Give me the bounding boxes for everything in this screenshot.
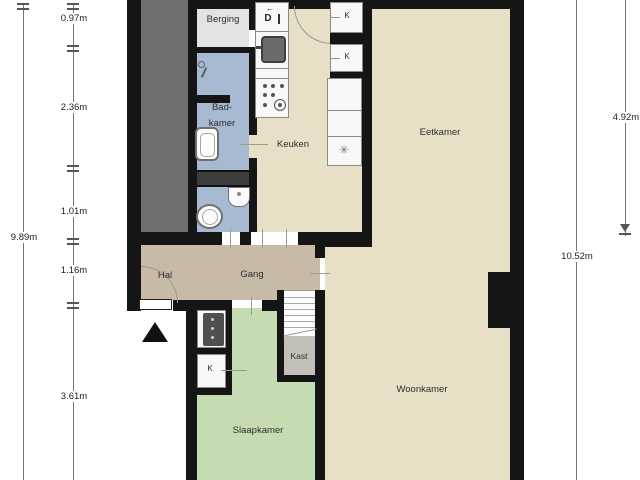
stairs (284, 290, 315, 336)
chimney-block (488, 272, 512, 328)
wall-berging-bottom (197, 47, 257, 53)
wall-gang-top-a (127, 232, 222, 245)
eetkamer-floor (372, 8, 510, 480)
shower-icon (197, 60, 211, 80)
room-label-badkamer-line2: kamer (197, 118, 247, 129)
wall-k1-k2 (330, 33, 363, 44)
wall-kast-bottom (277, 375, 322, 382)
wall-kast-left (277, 290, 284, 378)
room-label-gang: Gang (222, 269, 282, 280)
dim-label-seg-5: 3.61m (53, 391, 95, 402)
dim-arrow-down (620, 224, 630, 232)
wall-closet-bottom (186, 388, 232, 395)
shaft-area (141, 0, 188, 232)
wall-left-outer (127, 0, 141, 311)
toilet-door-opening (222, 232, 240, 245)
woonkamer-floor (325, 247, 372, 480)
sink-faucet-icon (256, 46, 263, 49)
dim-line-left-segments (73, 3, 74, 480)
dim-tick (67, 243, 79, 245)
room-label-woonkamer: Woonkamer (382, 384, 462, 395)
closet-k3-leader (221, 370, 247, 371)
appliance-arrow-icon: ← (262, 3, 278, 13)
stove-icon (257, 79, 288, 117)
keuken-passage-opening (251, 232, 298, 245)
dim-label-right-total: 10.52m (554, 251, 600, 262)
keuken-passage-mark-2 (286, 229, 287, 248)
bathroom-washbasin-icon (195, 127, 219, 161)
dim-tick (67, 8, 79, 10)
kitchen-sink-icon (261, 36, 286, 63)
gang-woonkamer-door-mark (310, 273, 330, 274)
wall-badkamer-toilet-band (197, 170, 257, 187)
room-label-eetkamer: Eetkamer (405, 127, 475, 138)
closet-k3-label: K (202, 364, 218, 373)
dim-line-right-total (576, 0, 577, 480)
room-label-berging: Berging (193, 14, 253, 25)
wall-gang-eetkamer (320, 238, 372, 247)
badkamer-door-opening (249, 135, 257, 158)
entrance-arrow-icon (142, 322, 168, 342)
room-label-keuken: Keuken (263, 139, 323, 150)
wall-gang-right-upper (315, 245, 325, 258)
floorplan-canvas: ← D K K ✳ K (0, 0, 640, 480)
toilet-door-mark (230, 229, 231, 248)
dim-tick (17, 8, 29, 10)
dim-tick (67, 170, 79, 172)
wall-keuken-right (362, 0, 372, 247)
dim-tick (67, 307, 79, 309)
dim-label-seg-4: 1.16m (53, 265, 95, 276)
appliance-d-label: D (260, 13, 276, 24)
toilet-bowl-icon (196, 204, 223, 229)
fridge-divider-1 (328, 110, 361, 111)
dim-tick (67, 302, 79, 304)
dim-tick (619, 233, 631, 235)
room-label-slaapkamer: Slaapkamer (223, 425, 293, 436)
slaapkamer-door-mark (251, 297, 252, 315)
dim-label-seg-2: 2.36m (53, 102, 95, 113)
wall-toilet-right (249, 172, 257, 232)
dim-tick (67, 3, 79, 5)
wall-shaft-right (188, 0, 197, 232)
dim-label-seg-3: 1.01m (53, 206, 95, 217)
dim-label-seg-1: 0.97m (53, 13, 95, 24)
dim-tick (67, 45, 79, 47)
washing-machine-icon (203, 313, 224, 346)
dim-tick (67, 50, 79, 52)
toilet-washbasin-icon (228, 187, 250, 207)
closet-k2-label: K (339, 52, 355, 61)
appliance-d-bar (278, 14, 280, 24)
keuken-passage-mark-1 (262, 229, 263, 248)
room-label-hal: Hal (145, 270, 185, 281)
fridge-divider-2 (328, 136, 361, 137)
wall-gang-right-lower (315, 290, 325, 480)
dim-tick (67, 165, 79, 167)
dim-tick (67, 238, 79, 240)
dim-label-right-upper: 4.92m (605, 112, 640, 123)
wall-gang-top-b (240, 232, 251, 245)
closet-k1-label: K (339, 11, 355, 20)
wall-right-outer (510, 0, 524, 480)
room-label-badkamer-line1: Bad- (197, 102, 247, 113)
counter-divider-1 (256, 31, 288, 32)
dim-label-left-total: 9.89m (3, 232, 45, 243)
dim-tick (17, 3, 29, 5)
counter-divider-2 (256, 68, 288, 69)
freezer-icon: ✳ (336, 143, 352, 157)
room-label-kast: Kast (279, 351, 319, 361)
